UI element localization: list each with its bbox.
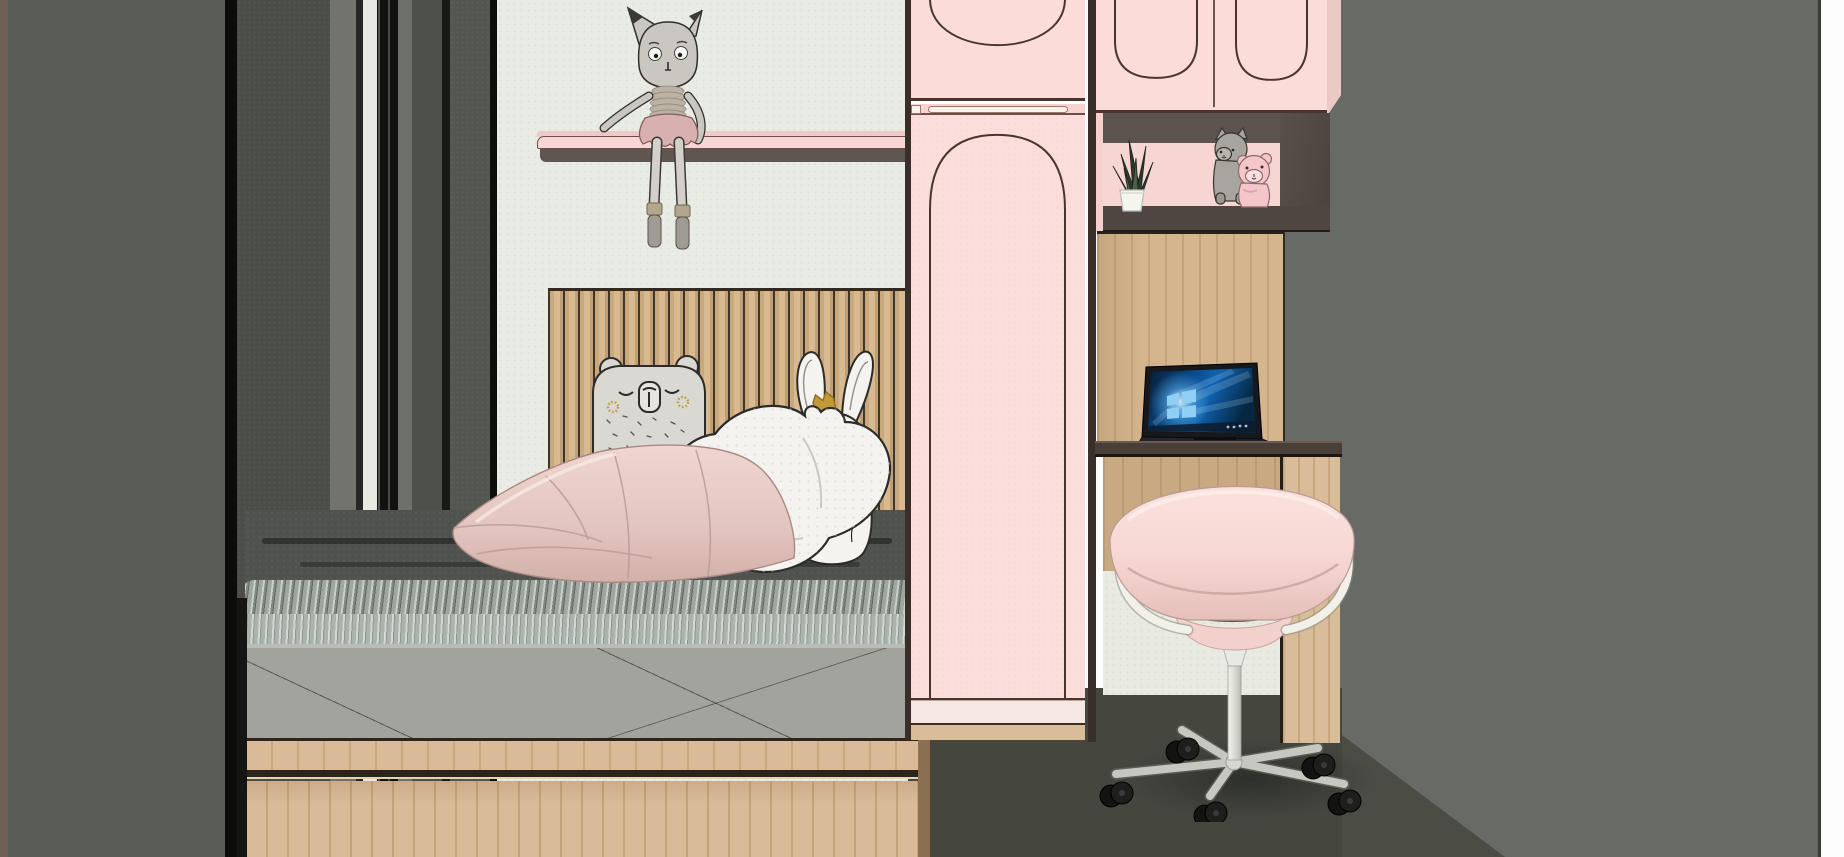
doll-boots [647,203,690,249]
panel-brown-edge [0,0,8,857]
bed-storage-drawer[interactable] [245,781,918,857]
niche-left-strip [1095,113,1103,232]
wardrobe-tall-door[interactable] [910,115,1085,700]
bed-left-shadow [237,598,247,857]
desk-chair[interactable] [1088,440,1380,822]
bed-side-wood [918,738,930,857]
wardrobe-plinth [910,700,1085,723]
doll-head [639,22,698,88]
panel-gray-a [8,0,225,857]
plush-toys [1203,126,1283,210]
snake-plant [1108,134,1156,214]
wardrobe-wood-base [910,723,1085,740]
mattress-front [245,644,918,738]
rag-doll [593,2,743,260]
chair-column [1228,666,1241,760]
doll-legs [654,142,682,208]
bed-drawer-groove [245,770,918,779]
door-arch-line [910,115,1085,698]
pink-pillow [446,436,806,588]
panel-black-gap [225,0,237,857]
cabinet-oval-arc [910,0,1085,98]
bed-wood-rail [245,738,918,770]
overhead-cabinet-right[interactable] [1095,0,1327,113]
room-render [0,0,1844,857]
wardrobe-trim-cap [911,105,921,114]
blanket-knit-band-light [245,614,920,644]
plush-pink-bear [1238,154,1272,208]
wardrobe-top-cabinet[interactable] [910,0,1085,101]
wardrobe-trim-groove [928,106,1068,113]
right-white-edge [1818,0,1844,857]
doll-skirt [639,114,697,146]
cabinet-arch-lines [1095,0,1327,110]
